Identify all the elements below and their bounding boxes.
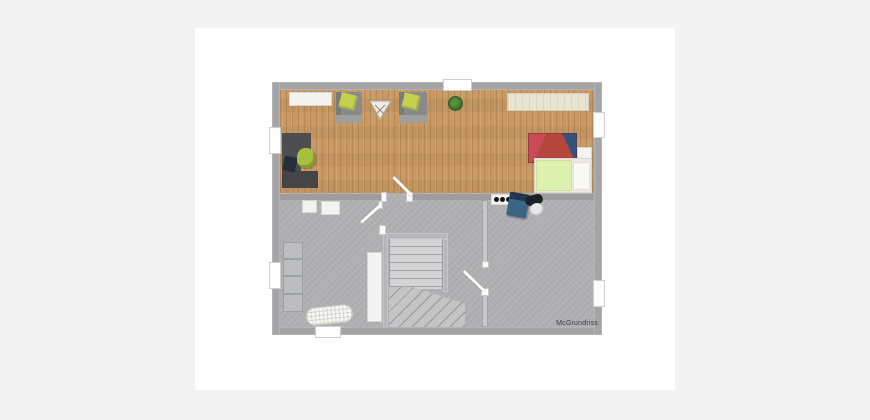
- door-post: [482, 261, 489, 268]
- burner-dot: [500, 197, 505, 202]
- divider-wall-left-segment: [280, 193, 387, 200]
- shelf-cell: [283, 242, 303, 259]
- armchair-right: [399, 92, 427, 123]
- wall-left: [272, 82, 280, 335]
- armchair-cushion: [401, 92, 420, 110]
- armchair-left: [336, 92, 362, 123]
- sideboard: [289, 92, 332, 106]
- page-background: McGrundriss: [0, 0, 870, 420]
- wall-cabinet: [507, 93, 589, 111]
- floor-plan: McGrundriss: [272, 82, 602, 335]
- desk-foot: [282, 171, 318, 188]
- window-left-upper: [269, 127, 281, 154]
- storage-cabinet-2: [321, 201, 340, 215]
- armchair-cushion: [338, 92, 357, 110]
- office-chair: [297, 148, 315, 168]
- partition-wall-lower-segment: [482, 292, 488, 327]
- potted-plant: [448, 96, 463, 111]
- wall-shelf: [283, 242, 303, 312]
- door-post: [379, 225, 386, 235]
- triangle-side-table: [368, 99, 393, 121]
- window-right-upper: [593, 112, 605, 138]
- stairs-straight-flight: [389, 239, 443, 289]
- bed-pillow: [573, 162, 590, 190]
- armchair-seat: [336, 115, 362, 123]
- burner-dot: [494, 197, 499, 202]
- shelf-cell: [283, 294, 303, 312]
- stair-shaft-left-wall: [383, 233, 388, 327]
- armchair-seat: [399, 115, 427, 123]
- partition-wall-upper-segment: [482, 200, 488, 265]
- boiler-tank: [530, 203, 544, 216]
- wall-top: [272, 82, 602, 90]
- shelf-cell: [283, 276, 303, 294]
- bed-blanket: [536, 160, 572, 191]
- window-right-lower: [593, 280, 605, 307]
- window-bottom: [315, 326, 341, 338]
- shelf-cell: [283, 259, 303, 276]
- stair-closet: [367, 252, 382, 322]
- window-top: [443, 79, 472, 91]
- stair-shaft-right-wall: [443, 239, 448, 292]
- window-left-lower: [269, 262, 281, 289]
- photo-card: McGrundriss: [195, 28, 675, 390]
- watermark-text: McGrundriss: [556, 320, 598, 327]
- storage-cabinet-1: [302, 200, 317, 213]
